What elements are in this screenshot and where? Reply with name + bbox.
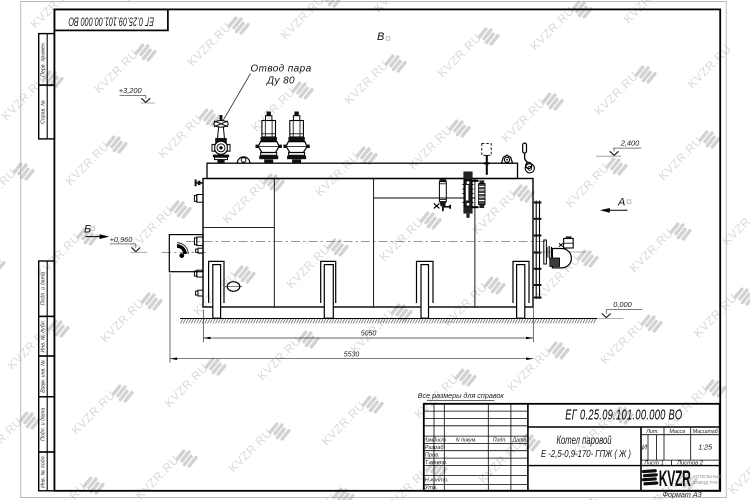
svg-text:Ду 80: Ду 80: [266, 75, 295, 86]
svg-text:Справ. №: Справ. №: [41, 100, 47, 124]
svg-text:КОТЕЛЬНЫЙ: КОТЕЛЬНЫЙ: [693, 472, 723, 479]
svg-text:KVZR.RU: KVZR.RU: [121, 0, 170, 4]
svg-text:Лист: Лист: [432, 438, 447, 444]
svg-text:Котел паровой: Котел паровой: [556, 434, 611, 447]
svg-text:Разраб.: Разраб.: [425, 445, 445, 451]
svg-text:KVZR.RU: KVZR.RU: [441, 280, 490, 329]
svg-text:KVZR.RU: KVZR.RU: [63, 139, 112, 188]
svg-text:KVZR.RU: KVZR.RU: [127, 204, 176, 253]
svg-text:KVZR.RU: KVZR.RU: [499, 96, 548, 145]
svg-text:5050: 5050: [361, 331, 377, 338]
svg-text:Взам. инв. №: Взам. инв. №: [41, 360, 47, 393]
svg-text:KVZR.RU: KVZR.RU: [476, 437, 525, 486]
svg-text:KVZR.RU: KVZR.RU: [371, 0, 420, 15]
svg-text:KVZR.RU: KVZR.RU: [621, 0, 670, 26]
svg-text:N докум.: N докум.: [456, 438, 477, 444]
svg-text:KVZR.RU: KVZR.RU: [592, 69, 641, 118]
svg-text:5530: 5530: [344, 351, 360, 358]
svg-text:Дата: Дата: [512, 438, 527, 444]
svg-text:KVZR.RU: KVZR.RU: [0, 166, 19, 215]
svg-text:KVZR.RU: KVZR.RU: [69, 388, 118, 437]
svg-text:0,000: 0,000: [613, 300, 632, 309]
svg-text:KVZR.RU: KVZR.RU: [319, 399, 368, 448]
svg-text:ЗАВОД РЭП: ЗАВОД РЭП: [693, 480, 720, 485]
svg-text:KVZR.RU: KVZR.RU: [162, 361, 211, 410]
svg-text:KVZR.RU: KVZR.RU: [278, 0, 327, 42]
svg-text:Инв. № подл.: Инв. № подл.: [41, 455, 47, 488]
svg-text:KVZR.RU: KVZR.RU: [226, 426, 275, 475]
svg-text:KVZR.RU: KVZR.RU: [98, 296, 147, 345]
svg-text:KVZR: KVZR: [659, 466, 691, 491]
svg-text:ЕГ 0.25.09.101.00.000 ВО: ЕГ 0.25.09.101.00.000 ВО: [565, 406, 682, 423]
svg-text:KVZR.RU: KVZR.RU: [377, 215, 426, 264]
svg-text:Т.контр.: Т.контр.: [425, 460, 448, 466]
svg-text:А: А: [617, 197, 625, 209]
svg-text:KVZR.RU: KVZR.RU: [505, 345, 554, 394]
svg-text:KVZR.RU: KVZR.RU: [435, 31, 484, 80]
svg-text:KVZR.RU: KVZR.RU: [133, 453, 182, 500]
svg-text:KVZR.RU: KVZR.RU: [627, 226, 676, 275]
svg-text:Масштаб: Масштаб: [693, 429, 719, 435]
svg-text:Отвод пара: Отвод пара: [250, 63, 311, 74]
svg-text:KVZR.RU: KVZR.RU: [470, 188, 519, 237]
svg-text:KVZR.RU: KVZR.RU: [563, 161, 612, 210]
svg-text:KVZR.RU: KVZR.RU: [290, 491, 339, 500]
svg-text:Н.контр.: Н.контр.: [425, 478, 449, 484]
svg-text:KVZR.RU: KVZR.RU: [656, 134, 705, 183]
svg-text:Пров.: Пров.: [425, 453, 440, 459]
svg-text:KVZR.RU: KVZR.RU: [342, 58, 391, 107]
svg-text:ЕГ 0.25.09.101.00.000 ВО: ЕГ 0.25.09.101.00.000 ВО: [68, 14, 154, 27]
svg-text:Инв. № дубл.: Инв. № дубл.: [41, 320, 47, 353]
svg-text:KVZR.RU: KVZR.RU: [685, 42, 734, 91]
svg-text:Формат А3: Формат А3: [662, 490, 701, 499]
svg-text:KVZR.RU: KVZR.RU: [720, 199, 750, 248]
svg-text:+0,960: +0,960: [110, 235, 134, 244]
svg-text:Подп. и дата: Подп. и дата: [41, 272, 47, 305]
svg-text:KVZR.RU: KVZR.RU: [528, 4, 577, 53]
svg-text:Е -2,5-0,9-170- ГПЖ ( Ж ): Е -2,5-0,9-170- ГПЖ ( Ж ): [541, 448, 631, 459]
svg-text:И: И: [642, 442, 648, 451]
svg-text:KVZR.RU: KVZR.RU: [220, 177, 269, 226]
svg-text:Подп. и дата: Подп. и дата: [41, 408, 47, 441]
svg-text:KVZR.RU: KVZR.RU: [185, 20, 234, 69]
svg-text:Все размеры для справок: Все размеры для справок: [418, 391, 505, 400]
svg-text:Лит.: Лит.: [645, 429, 659, 435]
svg-text:Б: Б: [84, 223, 91, 235]
svg-text:1:25: 1:25: [698, 442, 713, 451]
svg-text:+3,200: +3,200: [119, 86, 143, 95]
svg-text:Подп.: Подп.: [493, 438, 507, 444]
svg-text:Перв. примен.: Перв. примен.: [41, 42, 47, 77]
svg-text:KVZR.RU: KVZR.RU: [156, 112, 205, 161]
svg-text:KVZR.RU: KVZR.RU: [726, 448, 750, 497]
svg-text:Масса: Масса: [669, 429, 685, 435]
svg-text:В: В: [377, 31, 384, 43]
svg-text:KVZR.RU: KVZR.RU: [598, 318, 647, 367]
svg-text:2,400: 2,400: [620, 139, 640, 148]
svg-text:KVZR.RU: KVZR.RU: [691, 291, 740, 340]
svg-text:Утв.: Утв.: [424, 485, 438, 491]
